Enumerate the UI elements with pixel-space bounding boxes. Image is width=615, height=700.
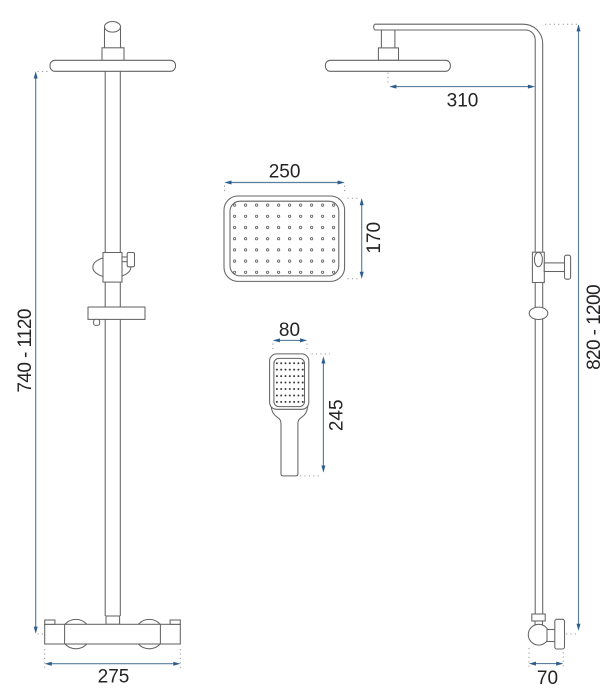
svg-text:70: 70 <box>537 668 558 689</box>
svg-text:250: 250 <box>269 162 301 183</box>
svg-text:245: 245 <box>326 399 347 431</box>
svg-text:275: 275 <box>98 666 130 687</box>
svg-text:740 - 1120: 740 - 1120 <box>15 309 36 392</box>
svg-text:310: 310 <box>447 90 479 111</box>
svg-text:80: 80 <box>279 320 300 341</box>
svg-text:170: 170 <box>364 222 385 254</box>
svg-text:820 - 1200: 820 - 1200 <box>584 285 605 370</box>
